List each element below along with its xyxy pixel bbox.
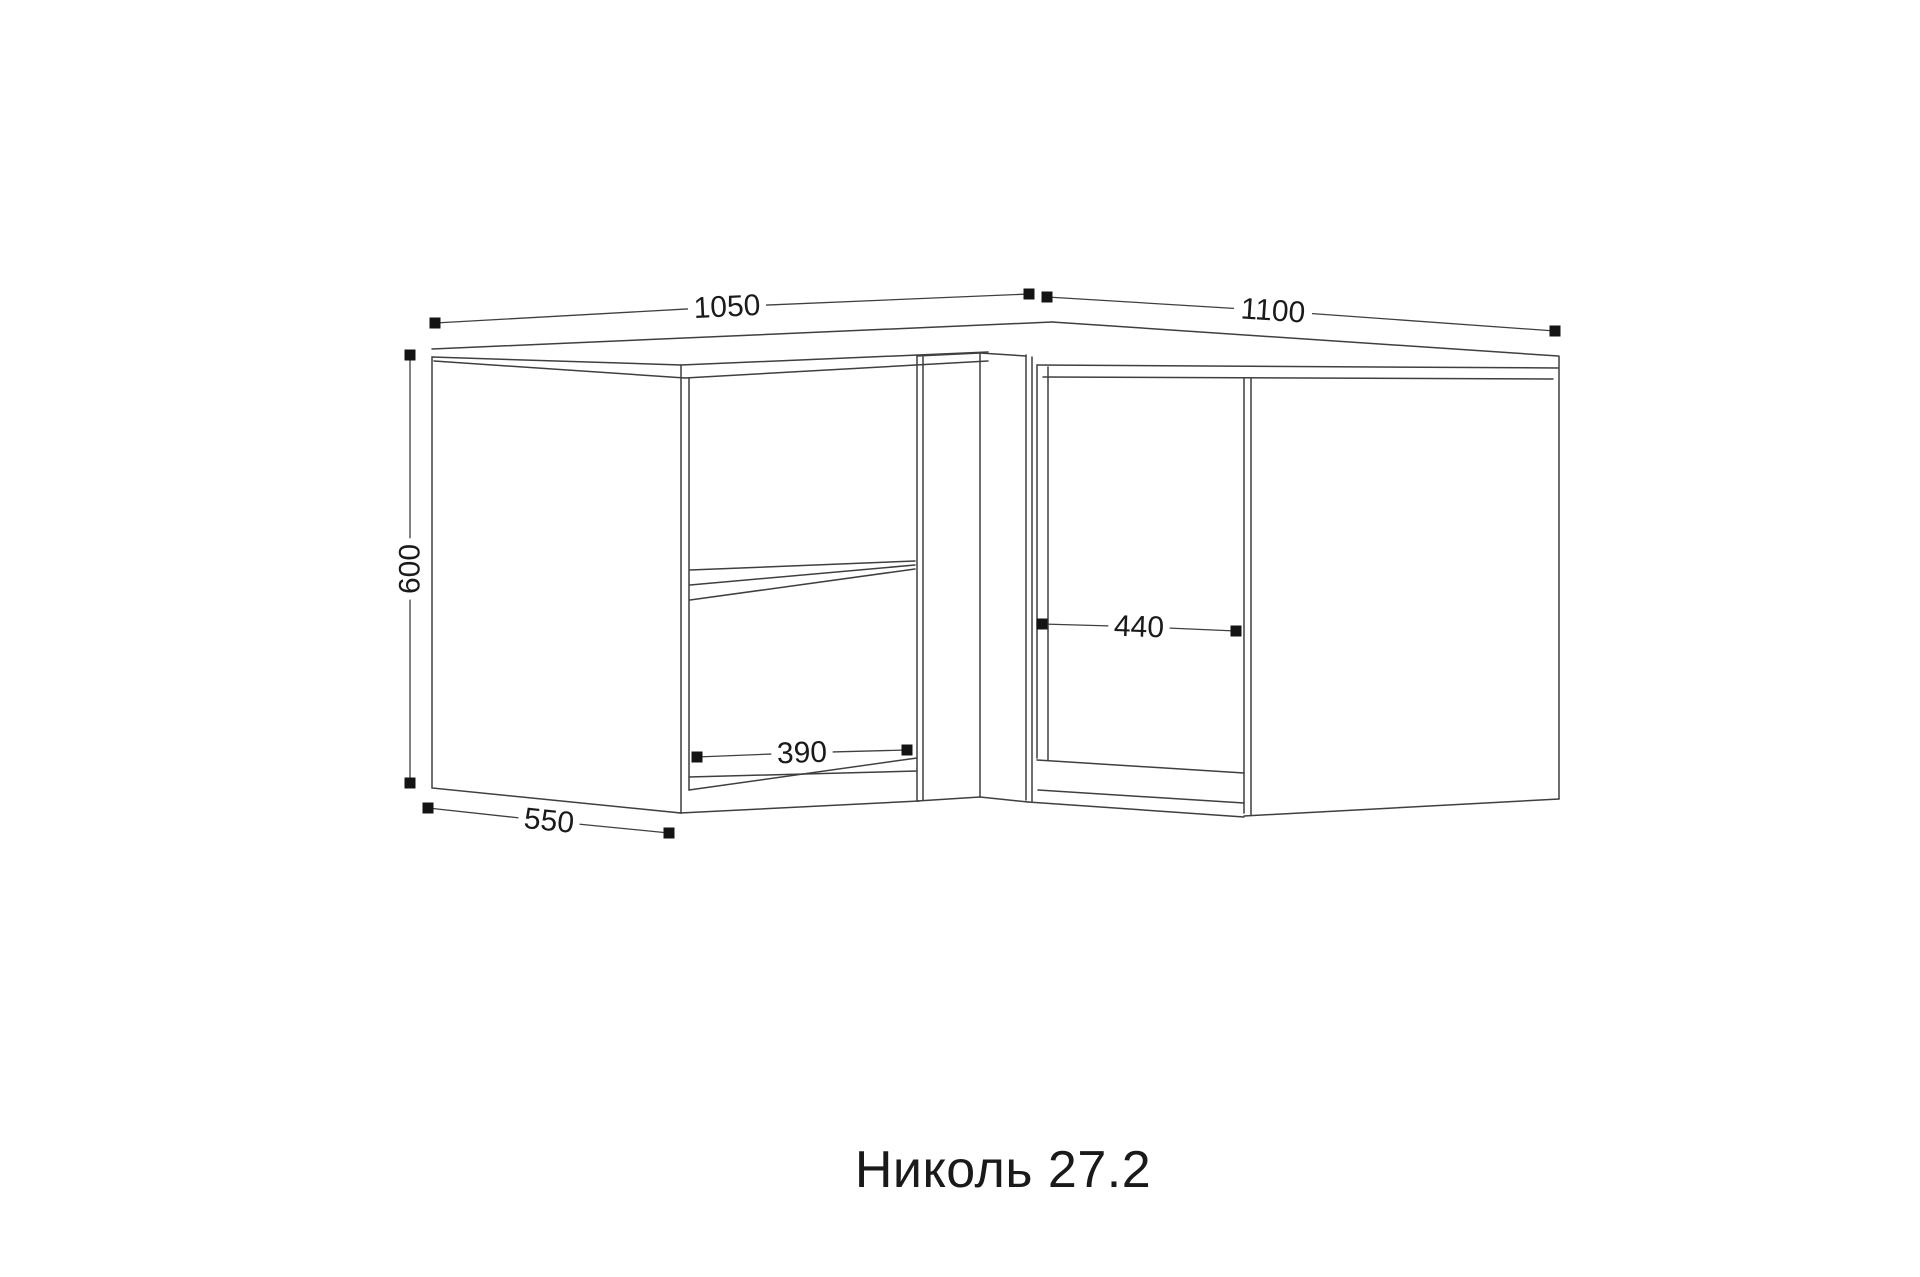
right-bottom-edge-at-opening	[1028, 802, 1244, 817]
technical-drawing-page: 10501100600550390440 Николь 27.2	[0, 0, 1920, 1277]
dimension-line-segment	[767, 294, 1029, 305]
dimension-label-top-width-left: 1050	[693, 289, 761, 325]
dimension-line-segment	[428, 808, 518, 818]
right-top-underside-edge	[1043, 377, 1553, 379]
dimension-end-marker	[430, 318, 441, 329]
dimension-end-marker	[1550, 326, 1561, 337]
drawing-title: Николь 27.2	[855, 1140, 1151, 1200]
dimension-end-marker	[1024, 289, 1035, 300]
right-bottom-front-edge	[1244, 799, 1559, 816]
dimension-opening-right-width: 440	[1037, 610, 1242, 645]
corner-post-top-right-edge	[980, 353, 1026, 356]
corner-post-bottom-right-edge	[980, 797, 1028, 802]
left-back-top-edge	[432, 322, 1052, 349]
right-top-front-edge	[1037, 365, 1558, 368]
dimension-label-top-width-right: 1100	[1240, 292, 1307, 329]
dimension-line-segment	[697, 754, 771, 757]
right-bottom-panel-front-edge	[1038, 790, 1244, 803]
dimension-opening-left-width: 390	[692, 736, 913, 771]
dimension-depth: 550	[423, 802, 675, 840]
dimension-end-marker	[664, 828, 675, 839]
dimension-line-segment	[833, 750, 907, 752]
dimension-line-segment	[1042, 624, 1108, 626]
right-bottom-panel-back-edge	[1037, 760, 1244, 773]
dimension-end-marker	[1231, 626, 1242, 637]
dimension-label-opening-right-width: 440	[1113, 610, 1164, 645]
right-cabinet-section	[1028, 322, 1559, 817]
dimension-top-width-right: 1100	[1042, 292, 1561, 337]
dimension-end-marker	[692, 752, 703, 763]
right-back-top-edge	[1052, 322, 1558, 356]
corner-post-bottom-left-edge	[917, 797, 980, 801]
dimension-end-marker	[423, 803, 434, 814]
dimension-top-width-left: 1050	[430, 289, 1035, 329]
dimension-line-segment	[580, 824, 669, 833]
left-cabinet-section	[432, 322, 1052, 813]
dimension-end-marker	[902, 745, 913, 756]
dimension-line-segment	[1047, 297, 1233, 308]
dimension-end-marker	[405, 350, 416, 361]
dimension-label-depth: 550	[522, 802, 575, 840]
dimension-end-marker	[1042, 292, 1053, 303]
left-shelf-underside-edge	[690, 569, 915, 600]
dimension-line-segment	[435, 309, 687, 323]
dimension-annotations: 10501100600550390440	[394, 289, 1561, 840]
dimension-label-height: 600	[394, 544, 427, 594]
dimension-line-segment	[1170, 628, 1236, 631]
dimension-line-segment	[1313, 314, 1555, 331]
left-bottom-front-edge	[680, 801, 919, 813]
dimension-end-marker	[405, 778, 416, 789]
dimension-label-opening-left-width: 390	[776, 736, 827, 771]
left-side-panel-face	[432, 357, 681, 813]
dimension-height: 600	[394, 350, 427, 789]
dimension-end-marker	[1037, 619, 1048, 630]
left-bottom-panel-front-edge	[689, 771, 917, 777]
corner-post	[917, 353, 1032, 802]
corner-cabinet-drawing: 10501100600550390440	[0, 0, 1920, 1277]
